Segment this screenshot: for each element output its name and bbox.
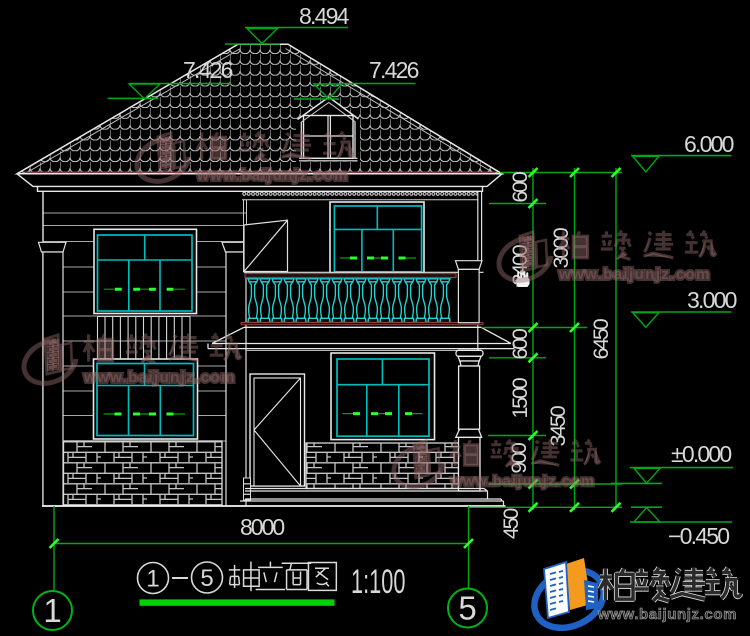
svg-text:450: 450 — [499, 508, 523, 540]
svg-text:6450: 6450 — [589, 318, 613, 359]
svg-text:600: 600 — [508, 328, 532, 360]
svg-text:7.426: 7.426 — [183, 57, 233, 83]
svg-text:±0.000: ±0.000 — [671, 441, 731, 467]
svg-text:5: 5 — [200, 565, 213, 592]
svg-text:8.494: 8.494 — [299, 3, 350, 29]
svg-text:−0.450: −0.450 — [668, 523, 729, 549]
svg-text:1500: 1500 — [508, 377, 532, 418]
svg-text:1:100: 1:100 — [351, 563, 405, 601]
svg-text:7.426: 7.426 — [369, 57, 419, 83]
svg-text:1: 1 — [146, 566, 159, 593]
svg-text:6.000: 6.000 — [684, 131, 734, 157]
svg-text:600: 600 — [508, 171, 532, 203]
svg-text:www.baijunjz.com: www.baijunjz.com — [597, 606, 737, 623]
svg-text:3.000: 3.000 — [687, 287, 737, 313]
svg-text:1: 1 — [43, 592, 61, 629]
svg-text:8000: 8000 — [240, 514, 284, 540]
svg-text:5: 5 — [458, 590, 476, 627]
